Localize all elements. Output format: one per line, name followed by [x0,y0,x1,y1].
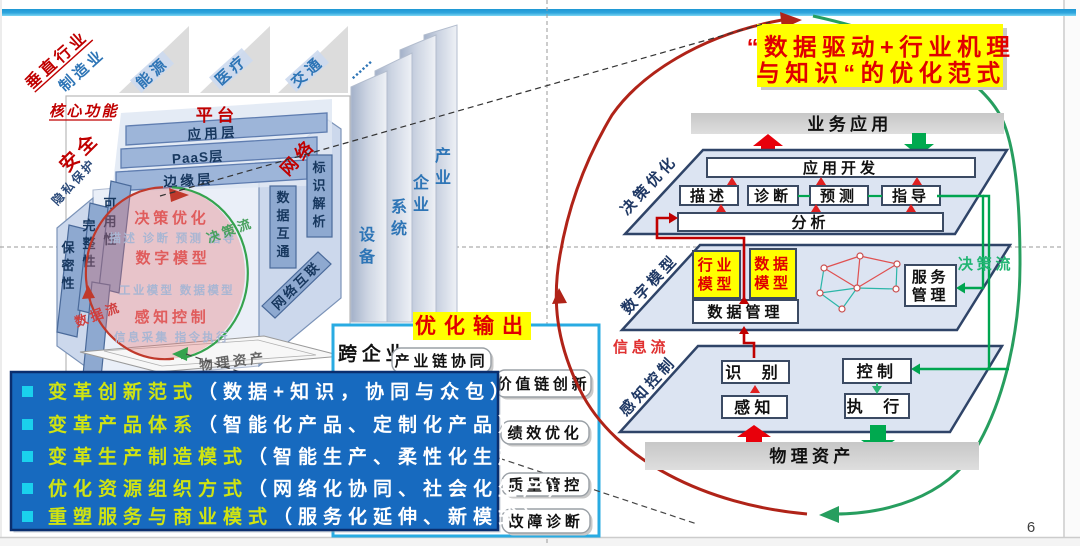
svg-text:“数据驱动+行业机理: “数据驱动+行业机理 [747,33,1015,60]
svg-text:PaaS层: PaaS层 [172,148,224,166]
svg-text:产业链协同: 产业链协同 [395,352,489,370]
svg-text:备: 备 [358,247,376,266]
svg-text:信息采集 指令执行: 信息采集 指令执行 [114,330,230,344]
svg-text:优化资源组织方式（网络化协同、社会化生产）: 优化资源组织方式（网络化协同、社会化生产） [48,477,573,500]
svg-text:数据: 数据 [754,255,792,273]
svg-text:行业: 行业 [697,256,736,274]
svg-text:变革创新范式（数据+知识，协同与众包）: 变革创新范式（数据+知识，协同与众包） [48,380,515,403]
svg-text:设: 设 [359,226,376,244]
svg-text:物理资产: 物理资产 [769,446,854,466]
svg-text:应用层: 应用层 [187,123,239,142]
svg-text:业: 业 [413,196,429,214]
svg-text:模型: 模型 [698,275,736,293]
svg-text:统: 统 [391,219,407,238]
svg-text:解: 解 [311,196,325,211]
svg-text:保: 保 [60,240,75,255]
svg-text:指导: 指导 [892,187,930,205]
svg-text:工业模型 数据模型: 工业模型 数据模型 [119,283,235,297]
svg-text:变革生产制造模式（智能生产、柔性化生产）: 变革生产制造模式（智能生产、柔性化生产） [48,445,548,468]
svg-text:互: 互 [276,226,289,241]
svg-text:识: 识 [312,178,325,193]
svg-text:边缘层: 边缘层 [162,170,215,189]
svg-text:诊断: 诊断 [754,187,792,205]
svg-text:描述: 描述 [690,187,728,205]
svg-text:应用开发: 应用开发 [803,159,879,177]
svg-text:性: 性 [61,276,74,291]
svg-text:通: 通 [276,244,289,259]
svg-text:完: 完 [82,218,95,233]
svg-text:信息流: 信息流 [613,338,669,356]
svg-text:模型: 模型 [754,274,792,292]
svg-text:变革产品体系（智能化产品、定制化产品）: 变革产品体系（智能化产品、定制化产品） [48,413,523,436]
svg-text:感知控制: 感知控制 [134,308,209,326]
svg-text:重塑服务与商业模式（服务化延伸、新模式）: 重塑服务与商业模式（服务化延伸、新模式） [48,505,548,528]
svg-text:产: 产 [435,146,451,165]
svg-text:优化输出: 优化输出 [415,314,531,338]
svg-text:据: 据 [276,208,289,223]
svg-text:析: 析 [312,214,325,229]
svg-text:业务应用: 业务应用 [807,114,892,134]
svg-text:核心功能: 核心功能 [49,102,119,120]
svg-text:服务: 服务 [912,268,950,286]
svg-text:执 行: 执 行 [847,397,907,416]
svg-text:感知: 感知 [734,398,775,417]
svg-text:决策优化: 决策优化 [134,209,209,227]
svg-text:与知识“的优化范式: 与知识“的优化范式 [756,59,1005,86]
svg-text:系: 系 [391,198,407,216]
svg-text:管理: 管理 [912,286,950,304]
svg-text:控制: 控制 [857,362,898,381]
svg-text:6: 6 [1027,519,1035,536]
svg-text:平台: 平台 [196,105,239,125]
svg-text:企: 企 [412,173,430,192]
svg-text:数据管理: 数据管理 [707,303,783,321]
svg-text:业: 业 [435,169,451,187]
svg-text:密: 密 [60,258,74,273]
svg-text:预测: 预测 [820,187,858,205]
svg-text:数: 数 [276,190,290,205]
svg-text:分析: 分析 [791,213,829,231]
svg-text:标: 标 [311,160,325,175]
svg-text:决策流: 决策流 [958,255,1014,273]
svg-text:数字模型: 数字模型 [135,249,210,267]
svg-text:识 别: 识 别 [725,364,785,382]
